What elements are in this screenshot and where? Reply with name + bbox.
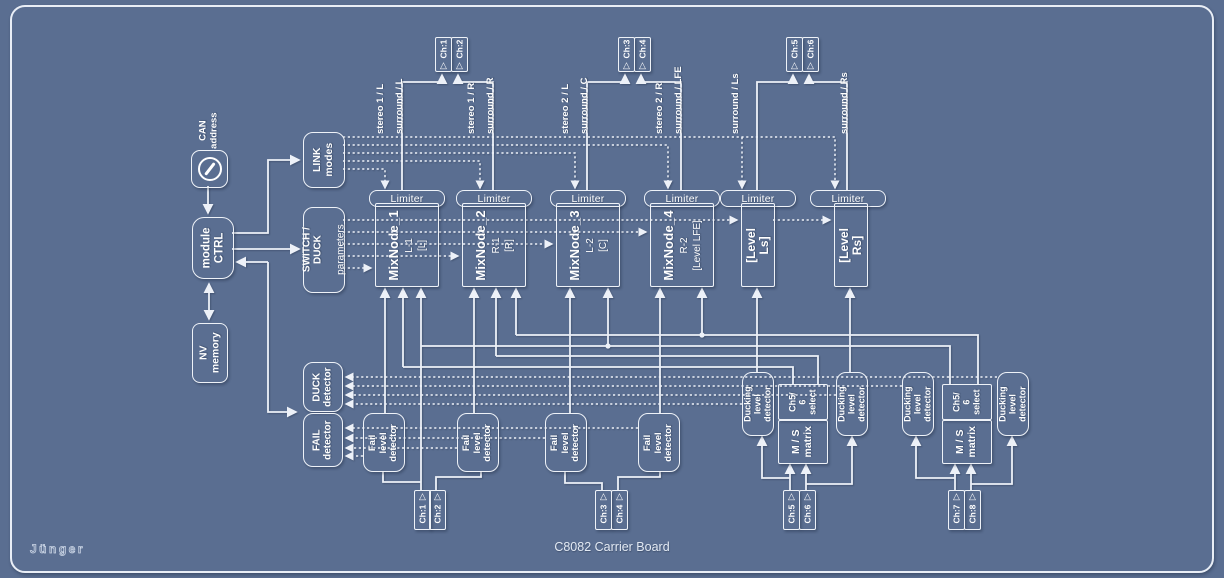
signal-label-surround-lfe: surround / LFE — [673, 66, 685, 134]
chevron-up-icon: △ — [436, 61, 451, 70]
input-ch2: △Ch:2 — [429, 490, 446, 530]
fail-level-detector-4: Fail level detector — [638, 413, 680, 472]
chevron-up-icon: △ — [619, 61, 634, 70]
ducking-level-detector-4: Ducking level detector — [997, 372, 1029, 436]
signal-label-surround-c: surround / C — [579, 78, 591, 134]
level-rs-box: [Level Rs] — [834, 203, 868, 287]
carrier-board-diagram: CAN address module CTRL NV memory LINK m… — [0, 0, 1224, 578]
signal-label-surround-r: surround / R — [485, 78, 497, 134]
chevron-up-icon: △ — [949, 492, 964, 501]
chevron-up-icon: △ — [800, 492, 815, 501]
output-ch5: Ch:5△ — [786, 37, 803, 72]
signal-label-stereo2-l: stereo 2 / L — [560, 84, 572, 134]
input-ch5: △Ch:5 — [783, 490, 800, 530]
level-ls-box: [Level Ls] — [741, 203, 775, 287]
can-address-label: CAN address — [191, 112, 227, 150]
ducking-level-detector-1: Ducking level detector — [742, 372, 774, 436]
ch56-select-1: Ch5/ 6 select — [778, 384, 828, 420]
can-address-rotary-icon — [191, 150, 228, 188]
ducking-level-detector-3: Ducking level detector — [902, 372, 934, 436]
signal-label-surround-rs: surround / Rs — [839, 72, 851, 134]
signal-label-surround-ls: surround / Ls — [730, 73, 742, 134]
fail-detector-box: FAIL detector — [303, 413, 343, 467]
chevron-up-icon: △ — [452, 61, 467, 70]
fail-level-detector-2: Fail level detector — [457, 413, 499, 472]
chevron-up-icon: △ — [612, 492, 627, 501]
output-ch3: Ch:3△ — [618, 37, 635, 72]
chevron-up-icon: △ — [635, 61, 650, 70]
signal-label-stereo1-l: stereo 1 / L — [375, 84, 387, 134]
board-caption: C8082 Carrier Board — [0, 540, 1224, 554]
input-ch4: △Ch:4 — [611, 490, 628, 530]
module-ctrl-box: module CTRL — [192, 217, 234, 279]
fail-level-detector-1: Fail level detector — [363, 413, 405, 472]
output-ch6: Ch:6△ — [802, 37, 819, 72]
signal-label-stereo2-r: stereo 2 / R — [654, 83, 666, 134]
chevron-up-icon: △ — [787, 61, 802, 70]
switch-duck-sub: parameters — [335, 225, 346, 276]
output-ch2: Ch:2△ — [451, 37, 468, 72]
chevron-up-icon: △ — [596, 492, 611, 501]
ducking-level-detector-2: Ducking level detector — [836, 372, 868, 436]
duck-detector-box: DUCK detector — [303, 362, 343, 412]
fail-level-detector-3: Fail level detector — [545, 413, 587, 472]
ch56-select-2: Ch5/ 6 select — [942, 384, 992, 420]
output-ch4: Ch:4△ — [634, 37, 651, 72]
switch-duck-parameters-box: SWITCH / DUCK parameters — [303, 207, 345, 293]
signal-label-surround-l: surround / L — [394, 79, 406, 134]
switch-duck-title: SWITCH / DUCK — [302, 225, 324, 276]
rotary-switch-icon — [198, 157, 222, 181]
nv-memory-box: NV memory — [192, 323, 228, 383]
ms-matrix-2: M / S matrix — [942, 420, 992, 464]
mixnode-2-box: MixNode_2R-1[R] — [462, 203, 526, 287]
signal-label-stereo1-r: stereo 1 / R — [466, 83, 478, 134]
input-ch8: △Ch:8 — [964, 490, 981, 530]
chevron-up-icon: △ — [430, 492, 445, 501]
chevron-up-icon: △ — [415, 492, 430, 501]
link-modes-box: LINK modes — [303, 132, 345, 188]
ms-matrix-1: M / S matrix — [778, 420, 828, 464]
mixnode-1-box: MixNode_1L-1[L] — [375, 203, 439, 287]
mixnode-4-box: MixNode_4R-2[Level LFE] — [650, 203, 714, 287]
chevron-up-icon: △ — [784, 492, 799, 501]
input-ch7: △Ch:7 — [948, 490, 965, 530]
chevron-up-icon: △ — [803, 61, 818, 70]
input-ch6: △Ch:6 — [799, 490, 816, 530]
chevron-up-icon: △ — [965, 492, 980, 501]
mixnode-3-box: MixNode_3L-2[C] — [556, 203, 620, 287]
output-ch1: Ch:1△ — [435, 37, 452, 72]
input-ch3: △Ch:3 — [595, 490, 612, 530]
